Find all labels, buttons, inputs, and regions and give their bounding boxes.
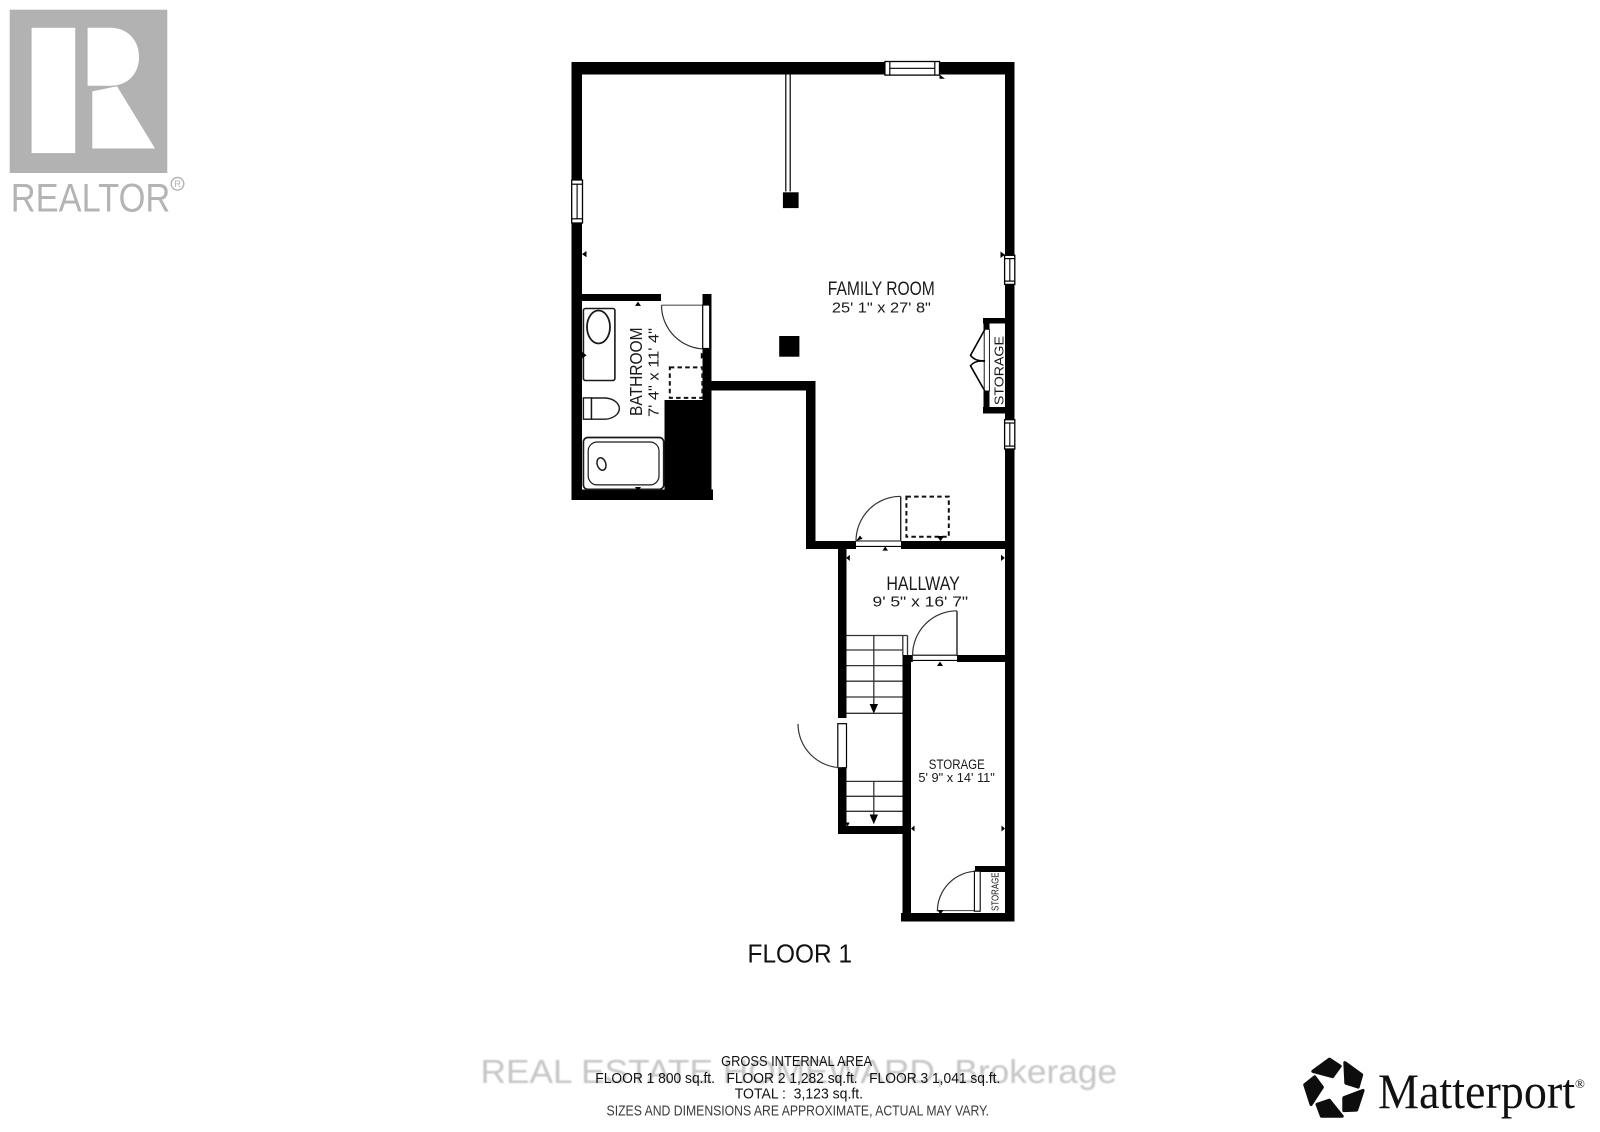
svg-text:5' 9" x 14' 11": 5' 9" x 14' 11" [918,771,995,785]
svg-text:FLOOR 1 800 sq.ft. FLOOR 2 1: FLOOR 1 800 sq.ft. FLOOR 2 1,282 sq.ft. … [595,1070,1000,1087]
svg-text:®: ® [1575,1076,1585,1091]
svg-text:25' 1" x 27' 8": 25' 1" x 27' 8" [832,301,931,317]
svg-text:Matterport: Matterport [1378,1063,1575,1119]
svg-text:7' 4" x 11' 4": 7' 4" x 11' 4" [647,328,663,417]
svg-text:TOTAL : 3,123 sq.ft.: TOTAL : 3,123 sq.ft. [735,1086,863,1103]
svg-text:REALTOR: REALTOR [11,177,171,221]
svg-text:HALLWAY: HALLWAY [886,574,960,595]
svg-text:FLOOR 1: FLOOR 1 [748,941,853,969]
svg-text:GROSS INTERNAL AREA: GROSS INTERNAL AREA [721,1053,872,1070]
svg-text:FAMILY ROOM: FAMILY ROOM [828,279,935,300]
svg-text:STORAGE: STORAGE [992,336,1006,405]
svg-text:9' 5" x 16' 7": 9' 5" x 16' 7" [873,594,969,611]
svg-text:SIZES AND DIMENSIONS ARE APPRO: SIZES AND DIMENSIONS ARE APPROXIMATE, AC… [607,1103,990,1120]
svg-text:R: R [174,179,181,190]
svg-text:BATHROOM: BATHROOM [626,327,646,416]
svg-text:STORAGE: STORAGE [991,872,1002,911]
svg-text:STORAGE: STORAGE [929,757,985,772]
